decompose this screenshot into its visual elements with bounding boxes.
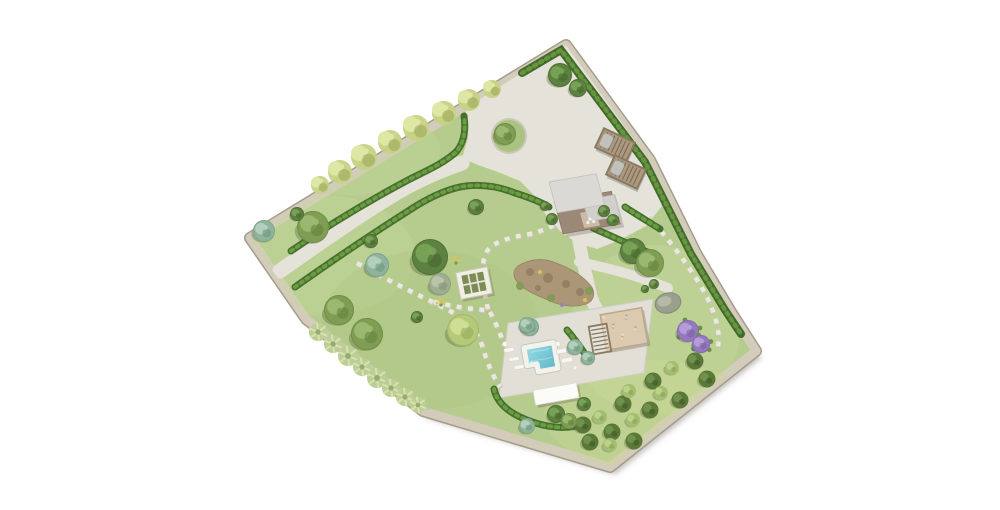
- pool-step: [528, 361, 529, 365]
- wall-shrub: [378, 130, 402, 154]
- side-table: [556, 342, 561, 347]
- purple-flowers: [560, 303, 564, 307]
- wall-shrub: [483, 80, 501, 98]
- site-plan-svg: [0, 0, 1000, 510]
- side-table: [573, 366, 577, 370]
- bed-rock: [562, 280, 570, 288]
- bed-plant: [585, 287, 593, 295]
- garden-pergola: [456, 266, 495, 302]
- bed-rock: [576, 288, 584, 296]
- tree: [251, 220, 275, 243]
- wall-shrub: [351, 144, 377, 170]
- yellow-flowers: [583, 298, 587, 302]
- bed-plant: [547, 294, 555, 302]
- agave-plant: [324, 335, 342, 353]
- wall-shrub: [328, 160, 352, 184]
- wall-shrub: [458, 89, 480, 111]
- yellow-flowers: [538, 270, 542, 274]
- pool-pergola-slats: [589, 324, 612, 355]
- bed-plant: [516, 282, 524, 290]
- wall-shrub: [311, 176, 329, 194]
- wall-shrub: [403, 115, 429, 141]
- side-table: [503, 342, 508, 347]
- bed-rock: [535, 285, 541, 291]
- agave-plant: [309, 323, 327, 341]
- bed-rock: [526, 268, 534, 276]
- wall-shrub: [432, 101, 456, 125]
- agave-plant: [410, 397, 426, 413]
- bed-rock: [543, 273, 553, 283]
- site-plan-stage: [0, 0, 1000, 510]
